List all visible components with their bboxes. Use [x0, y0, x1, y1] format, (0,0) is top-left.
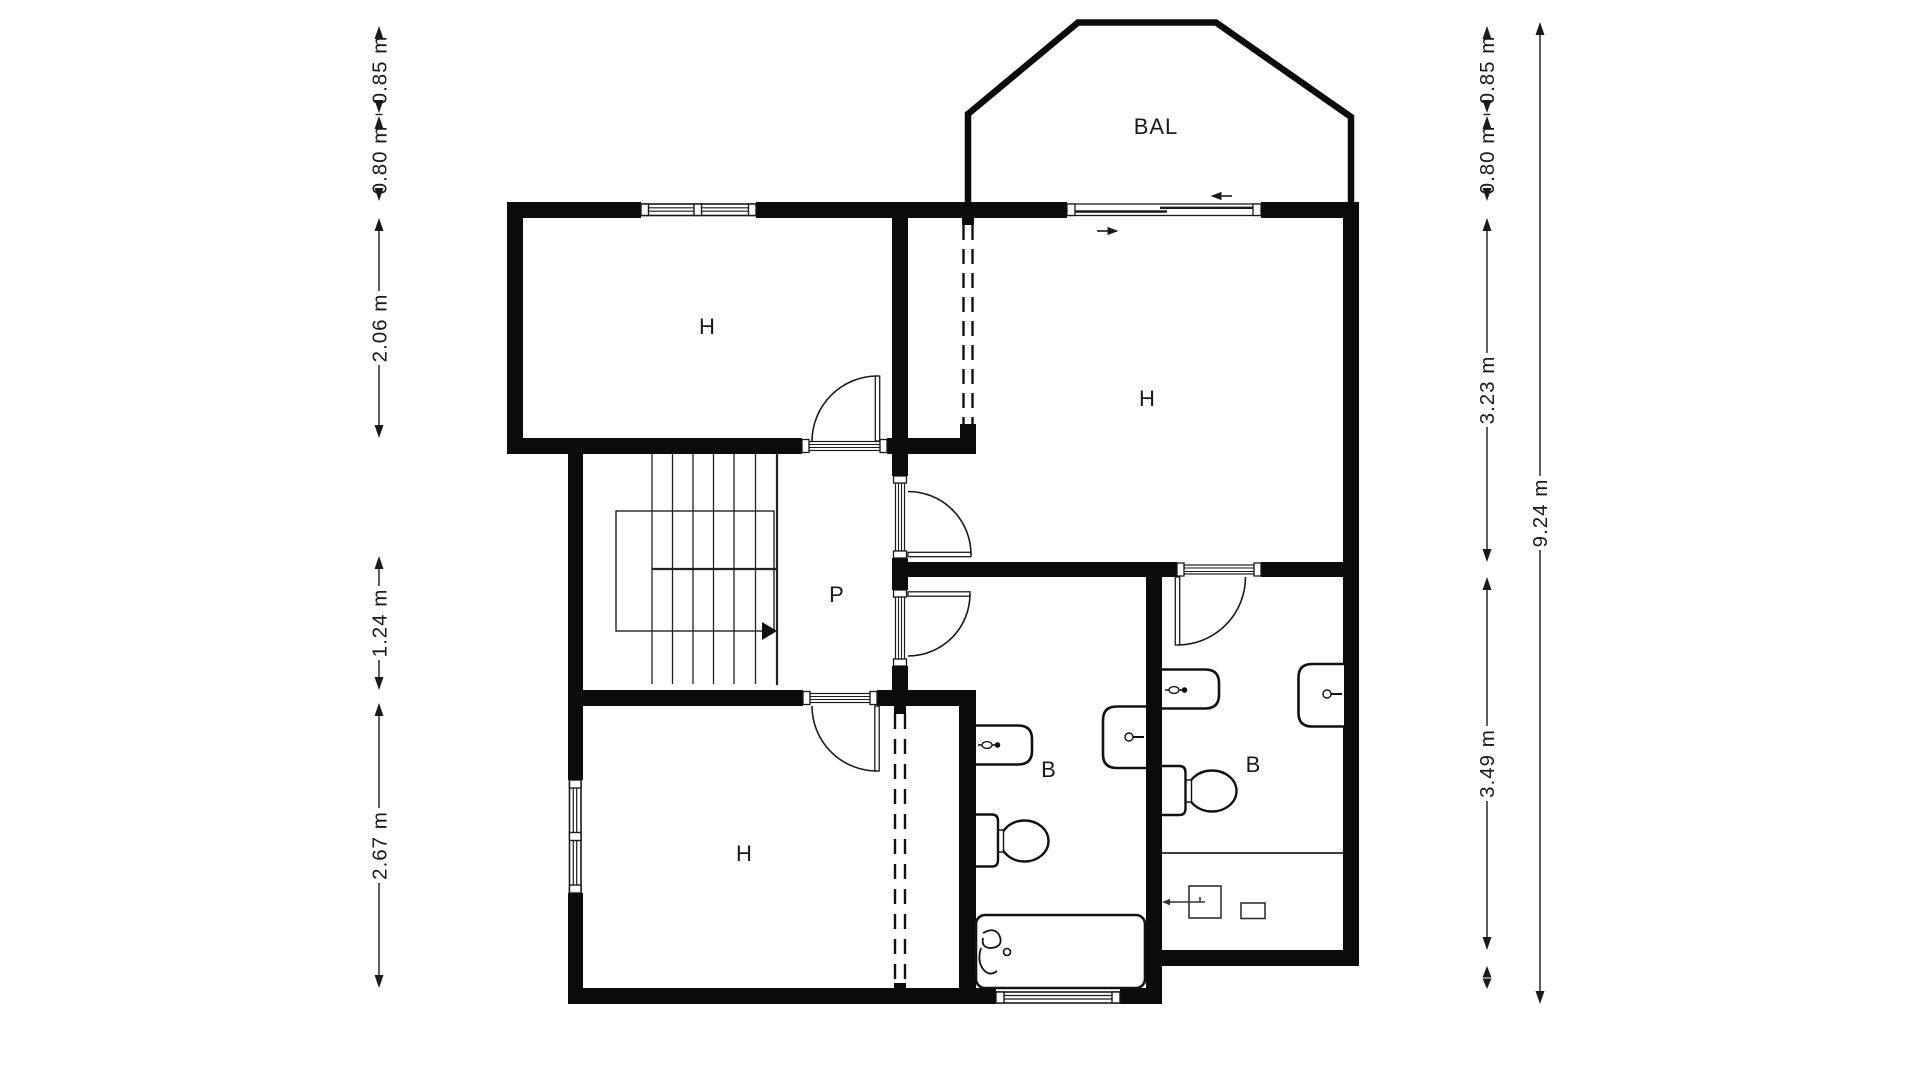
svg-text:P: P — [829, 582, 844, 607]
svg-text:H: H — [736, 841, 752, 866]
svg-text:0.80 m: 0.80 m — [1476, 126, 1499, 195]
svg-text:H: H — [1139, 386, 1155, 411]
svg-text:0.85 m: 0.85 m — [369, 36, 392, 105]
svg-text:H: H — [699, 314, 715, 339]
svg-text:2.06 m: 2.06 m — [369, 294, 392, 363]
svg-text:0.85 m: 0.85 m — [1476, 36, 1499, 105]
svg-text:0.80 m: 0.80 m — [369, 126, 392, 195]
svg-text:BAL: BAL — [1134, 114, 1179, 139]
svg-text:B: B — [1246, 752, 1261, 777]
svg-text:1.24 m: 1.24 m — [369, 589, 392, 658]
svg-text:B: B — [1041, 757, 1056, 782]
svg-text:2.67 m: 2.67 m — [369, 811, 392, 880]
svg-text:3.23 m: 3.23 m — [1476, 356, 1499, 425]
svg-text:9.24 m: 9.24 m — [1529, 479, 1552, 548]
svg-text:3.49 m: 3.49 m — [1476, 729, 1499, 798]
